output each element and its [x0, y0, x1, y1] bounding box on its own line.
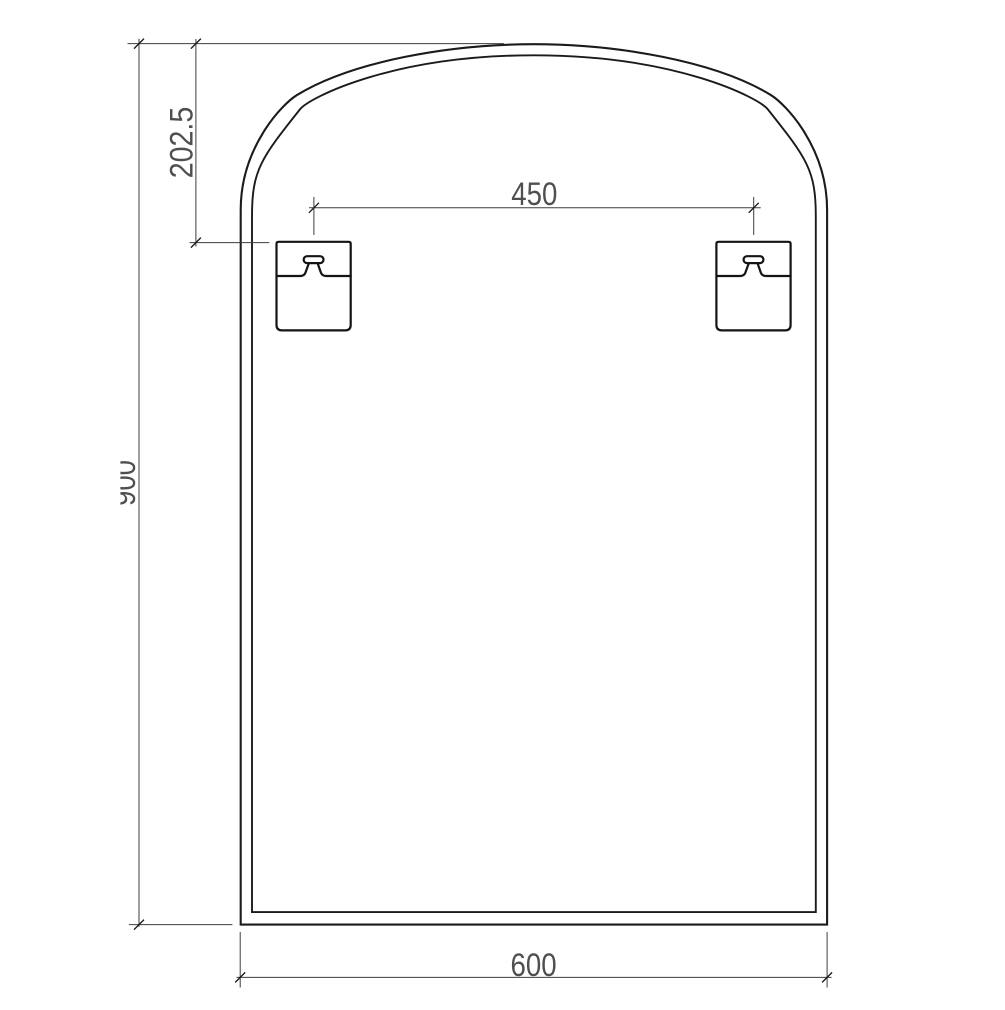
- svg-text:202.5: 202.5: [164, 107, 200, 179]
- svg-text:600: 600: [511, 948, 557, 984]
- svg-text:450: 450: [511, 177, 557, 213]
